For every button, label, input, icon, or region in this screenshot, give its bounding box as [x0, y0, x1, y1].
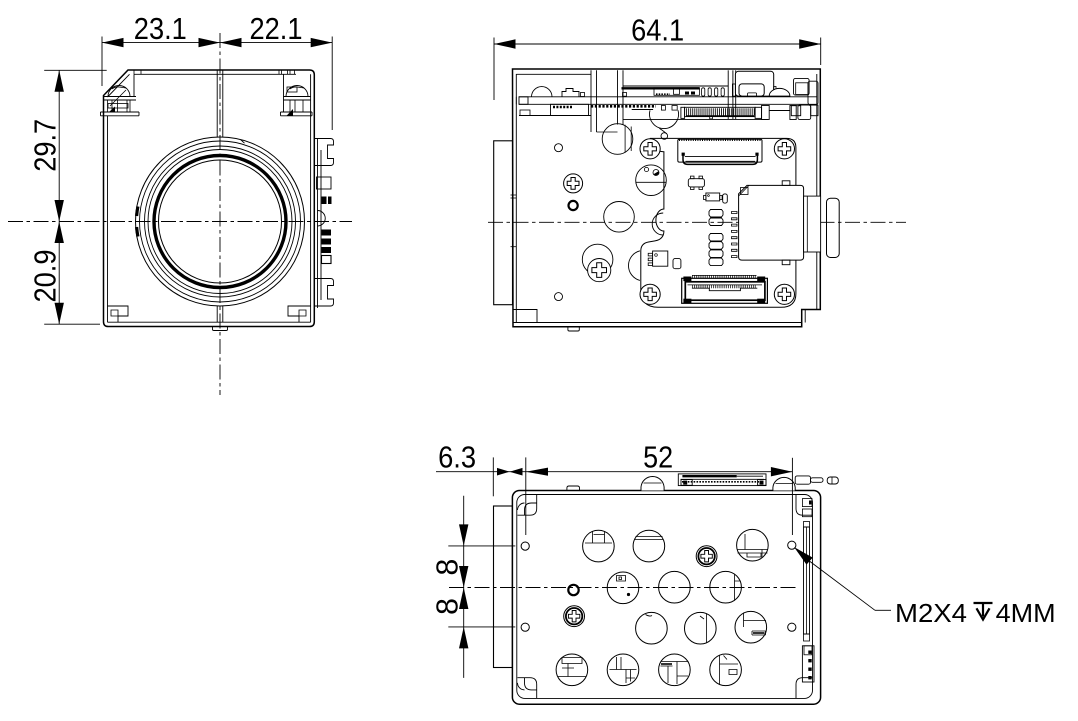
svg-text:M2X4: M2X4: [895, 598, 967, 628]
svg-text:23.1: 23.1: [134, 12, 187, 46]
svg-text:64.1: 64.1: [631, 13, 684, 47]
svg-text:52: 52: [643, 441, 673, 475]
svg-text:6.3: 6.3: [438, 441, 476, 475]
svg-text:22.1: 22.1: [250, 12, 303, 46]
svg-text:29.7: 29.7: [29, 119, 63, 172]
svg-text:4MM: 4MM: [996, 598, 1056, 628]
svg-text:20.9: 20.9: [29, 250, 63, 303]
svg-text:8: 8: [431, 559, 465, 576]
svg-text:8: 8: [431, 598, 465, 615]
